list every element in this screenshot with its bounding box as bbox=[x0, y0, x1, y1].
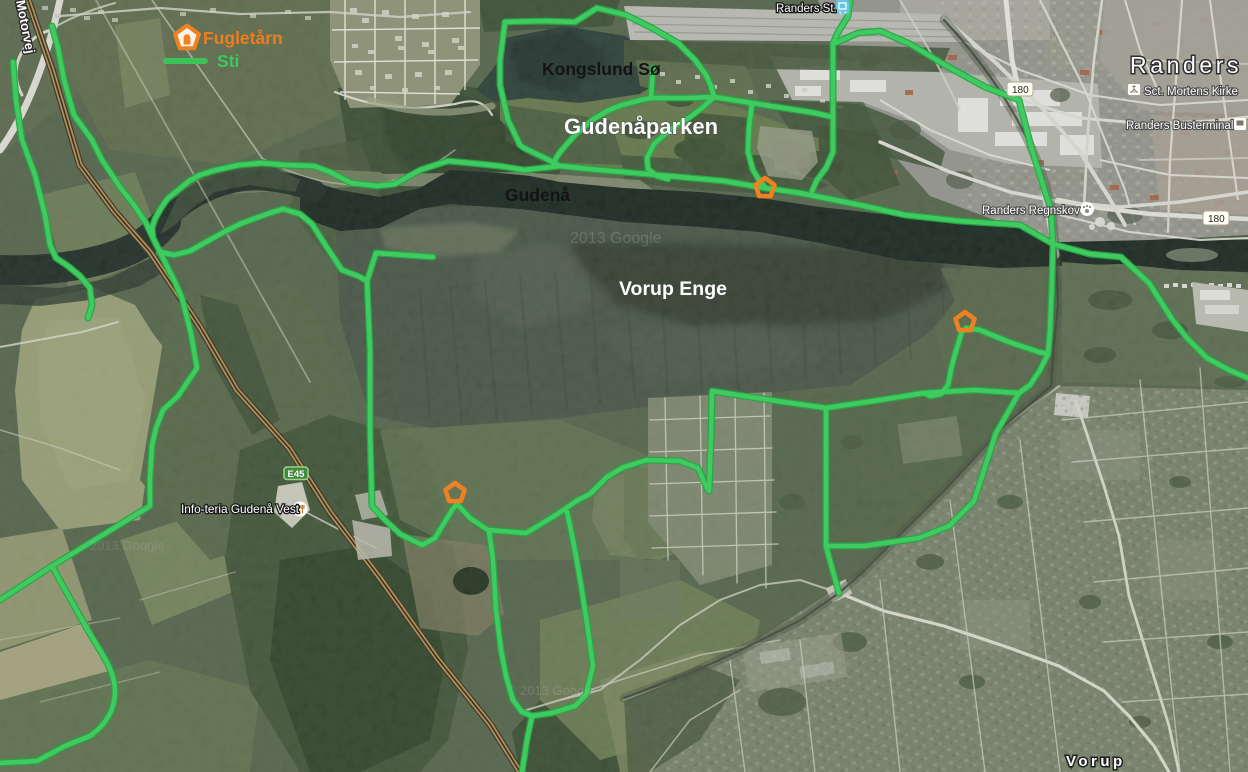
svg-text:Randers Busterminal: Randers Busterminal bbox=[1126, 120, 1233, 132]
svg-text:Randers Regnskov: Randers Regnskov bbox=[982, 205, 1080, 217]
svg-text:Sct. Mortens Kirke: Sct. Mortens Kirke bbox=[1144, 86, 1238, 98]
svg-text:Randers St.: Randers St. bbox=[776, 3, 837, 15]
svg-text:Fugletårn: Fugletårn bbox=[203, 28, 283, 48]
svg-text:Gudenå: Gudenå bbox=[505, 185, 570, 205]
svg-text:Info-teria Gudenå Vest: Info-teria Gudenå Vest bbox=[181, 502, 300, 516]
svg-text:2013 Google: 2013 Google bbox=[570, 230, 662, 247]
svg-text:2013 Google: 2013 Google bbox=[520, 683, 594, 698]
svg-text:180: 180 bbox=[1208, 214, 1225, 225]
svg-text:E45: E45 bbox=[288, 469, 306, 480]
svg-text:180: 180 bbox=[1012, 85, 1029, 96]
svg-text:2013 Google: 2013 Google bbox=[90, 538, 164, 553]
svg-text:Vorup: Vorup bbox=[1066, 753, 1126, 770]
svg-text:Kongslund Sø: Kongslund Sø bbox=[542, 59, 661, 79]
svg-text:Randers: Randers bbox=[1130, 52, 1242, 78]
svg-text:Sti: Sti bbox=[217, 51, 239, 71]
svg-text:Gudenåparken: Gudenåparken bbox=[564, 114, 718, 139]
svg-text:Vorup Enge: Vorup Enge bbox=[619, 278, 727, 300]
